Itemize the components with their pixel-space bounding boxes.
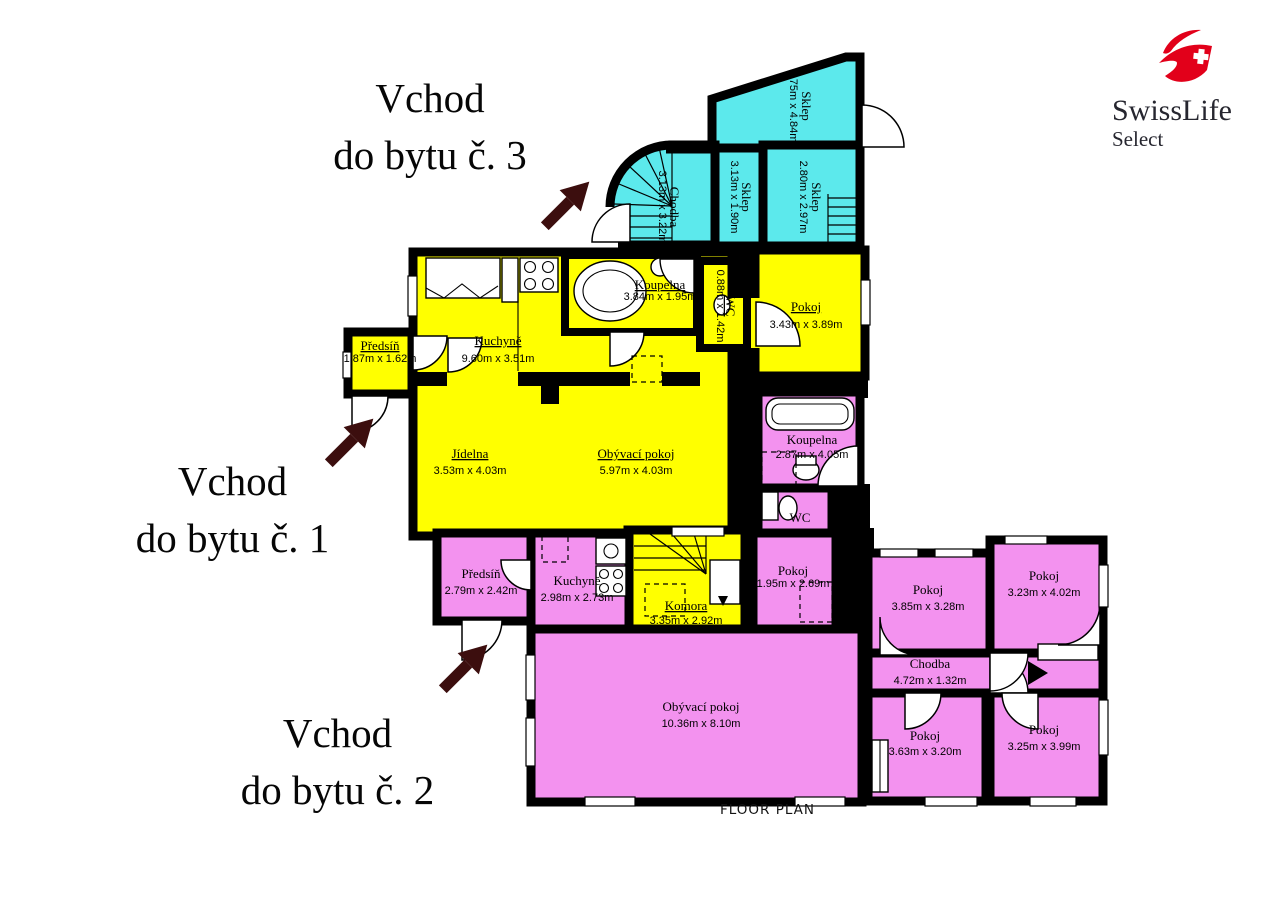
svg-text:2.79m x 2.42m: 2.79m x 2.42m [445, 585, 518, 597]
svg-text:3.85m x 3.28m: 3.85m x 3.28m [892, 601, 965, 613]
svg-text:3.84m x 1.95m: 3.84m x 1.95m [624, 291, 697, 303]
svg-text:3.13m x 3.22m: 3.13m x 3.22m [656, 171, 668, 244]
svg-text:3.13m x 1.90m: 3.13m x 1.90m [728, 161, 740, 234]
entrance-label-3: Vchod do bytu č. 3 [255, 70, 605, 184]
svg-text:Předsíň: Předsíň [361, 338, 401, 353]
svg-text:Koupelna: Koupelna [635, 277, 686, 292]
entrance-label-1-line1: Vchod [60, 453, 405, 510]
svg-text:Pokoj: Pokoj [1029, 568, 1059, 583]
svg-text:Pokoj: Pokoj [910, 728, 940, 743]
svg-text:Komora: Komora [665, 598, 708, 613]
door-arc-entrance-3 [592, 204, 630, 242]
room-shape-a3-sklep-top [712, 57, 860, 152]
svg-text:1.95m x 2.69m: 1.95m x 2.69m [757, 578, 830, 590]
brand-name: SwissLife [1112, 95, 1252, 127]
door-arc-sklep-top [862, 105, 904, 147]
entrance-label-2-line2: do bytu č. 2 [165, 762, 510, 819]
svg-text:4.72m x 1.32m: 4.72m x 1.32m [894, 675, 967, 687]
svg-text:Jídelna: Jídelna [452, 446, 489, 461]
svg-text:Kuchyně: Kuchyně [475, 333, 522, 348]
brand-subname: Select [1112, 128, 1252, 150]
svg-text:Pokoj: Pokoj [791, 299, 821, 314]
svg-text:0.88m x 1.42m: 0.88m x 1.42m [714, 270, 726, 343]
sink [762, 492, 778, 520]
svg-text:2.98m x 2.73m: 2.98m x 2.73m [541, 592, 614, 604]
entrance-label-2-line1: Vchod [165, 705, 510, 762]
bathtub [766, 398, 854, 430]
svg-text:Kuchyně: Kuchyně [554, 573, 601, 588]
room-shape-a2-obyvaci [531, 629, 862, 802]
svg-text:Obývací pokoj: Obývací pokoj [598, 446, 675, 461]
page: Sklep 1.75m x 4.84m Chodba 3.13m x 3.22m… [0, 0, 1280, 905]
svg-text:3.63m x 3.20m: 3.63m x 3.20m [889, 746, 962, 758]
svg-text:Sklep: Sklep [809, 182, 824, 212]
svg-text:5.97m x 4.03m: 5.97m x 4.03m [600, 465, 673, 477]
svg-text:9.60m x 3.51m: 9.60m x 3.51m [462, 353, 535, 365]
svg-text:3.53m x 4.03m: 3.53m x 4.03m [434, 465, 507, 477]
entrance-label-3-line2: do bytu č. 3 [255, 127, 605, 184]
entrance-label-3-line1: Vchod [255, 70, 605, 127]
svg-text:Sklep: Sklep [799, 91, 814, 121]
svg-text:Pokoj: Pokoj [1029, 722, 1059, 737]
svg-text:Chodba: Chodba [667, 187, 682, 228]
svg-text:Chodba: Chodba [910, 656, 951, 671]
entrance-label-1-line2: do bytu č. 1 [60, 510, 405, 567]
svg-text:Předsíň: Předsíň [462, 566, 502, 581]
svg-text:3.23m x 4.02m: 3.23m x 4.02m [1008, 587, 1081, 599]
svg-text:WC: WC [790, 510, 811, 525]
svg-text:3.35m x 2.92m: 3.35m x 2.92m [650, 615, 723, 627]
svg-text:2.87m x 4.05m: 2.87m x 4.05m [776, 449, 849, 461]
brand-logo: SwissLife Select [1112, 26, 1252, 150]
niche [1038, 644, 1098, 660]
kitchen-fixtures [596, 538, 626, 596]
apartment-3-rooms [592, 57, 904, 246]
svg-text:Obývací pokoj: Obývací pokoj [663, 699, 740, 714]
svg-text:Sklep: Sklep [739, 182, 754, 212]
svg-text:2.80m x 2.97m: 2.80m x 2.97m [797, 161, 809, 234]
floor-plan-caption: FLOOR PLAN [690, 802, 845, 818]
svg-text:Pokoj: Pokoj [778, 563, 808, 578]
swisslife-flag-icon [1148, 26, 1222, 90]
svg-text:3.43m x 3.89m: 3.43m x 3.89m [770, 319, 843, 331]
svg-text:1.87m x 1.62m: 1.87m x 1.62m [344, 353, 417, 365]
entrance-label-1: Vchod do bytu č. 1 [60, 453, 405, 567]
svg-text:1.75m x 4.84m: 1.75m x 4.84m [787, 70, 799, 143]
svg-text:3.25m x 3.99m: 3.25m x 3.99m [1008, 741, 1081, 753]
entrance-label-2: Vchod do bytu č. 2 [165, 705, 510, 819]
room-label-a2-wc: WC [790, 510, 811, 525]
svg-text:10.36m x 8.10m: 10.36m x 8.10m [662, 718, 741, 730]
svg-text:Pokoj: Pokoj [913, 582, 943, 597]
svg-text:Koupelna: Koupelna [787, 432, 838, 447]
